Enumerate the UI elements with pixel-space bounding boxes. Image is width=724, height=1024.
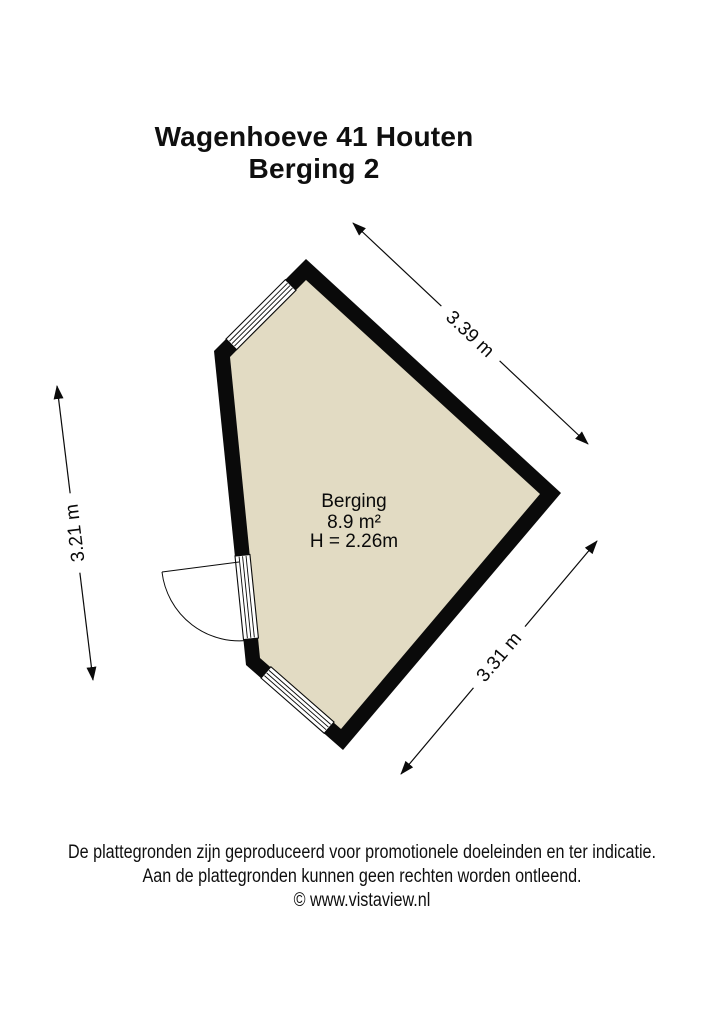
dimension-label-bottom-right: 3.31 m (473, 628, 526, 686)
room-name: Berging (321, 491, 387, 512)
dimension-left: 3.21 m (57, 386, 93, 680)
disclaimer-line2: Aan de plattegronden kunnen geen rechten… (54, 865, 669, 889)
copyright: © www.vistaview.nl (54, 889, 669, 913)
room-ceiling-height: H = 2.26m (310, 531, 398, 552)
disclaimer-line1: De plattegronden zijn geproduceerd voor … (54, 841, 669, 865)
disclaimer: De plattegronden zijn geproduceerd voor … (54, 841, 669, 913)
dimension-label-top-right: 3.39 m (441, 307, 498, 362)
room-area: 8.9 m² (327, 512, 381, 533)
door-leaf (162, 562, 239, 572)
